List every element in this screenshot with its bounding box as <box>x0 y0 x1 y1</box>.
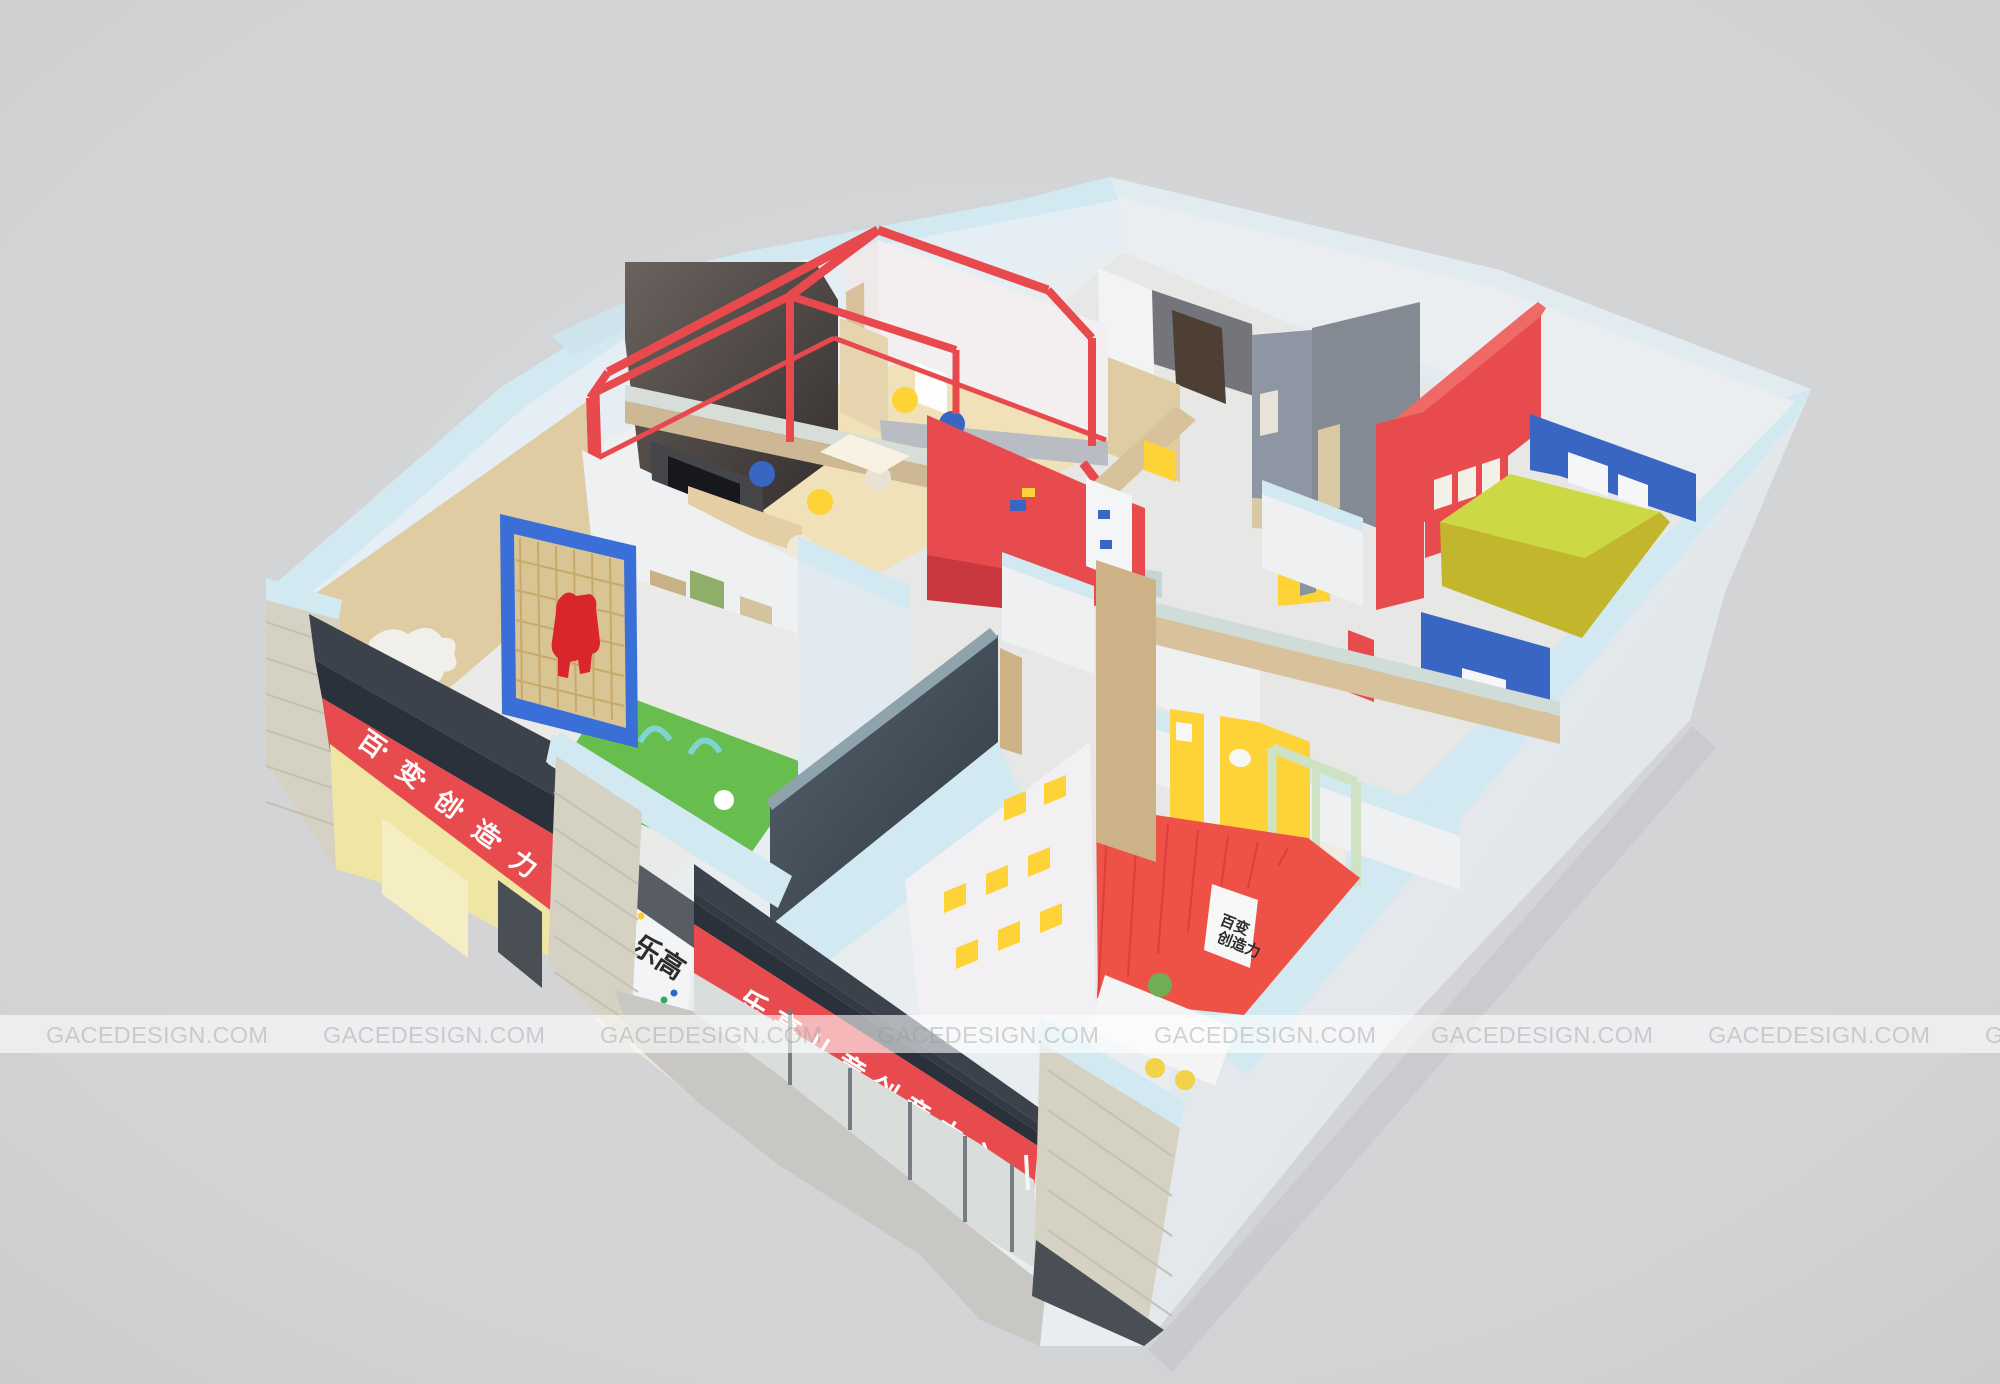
svg-text:GACEDESIGN.COM: GACEDESIGN.COM <box>1708 1022 1930 1048</box>
svg-text:GACEDESIGN.COM: GACEDESIGN.COM <box>600 1022 822 1048</box>
svg-text:GACEDESIGN.COM: GACEDESIGN.COM <box>1154 1022 1376 1048</box>
svg-text:GACEDESIGN.COM: GACEDESIGN.COM <box>46 1022 268 1048</box>
svg-text:GACEDESIGN.COM: GACEDESIGN.COM <box>323 1022 545 1048</box>
svg-text:GACEDESIGN.COM: GACEDESIGN.COM <box>1985 1022 2000 1048</box>
svg-text:GACEDESIGN.COM: GACEDESIGN.COM <box>1431 1022 1653 1048</box>
svg-text:GACEDESIGN.COM: GACEDESIGN.COM <box>877 1022 1099 1048</box>
